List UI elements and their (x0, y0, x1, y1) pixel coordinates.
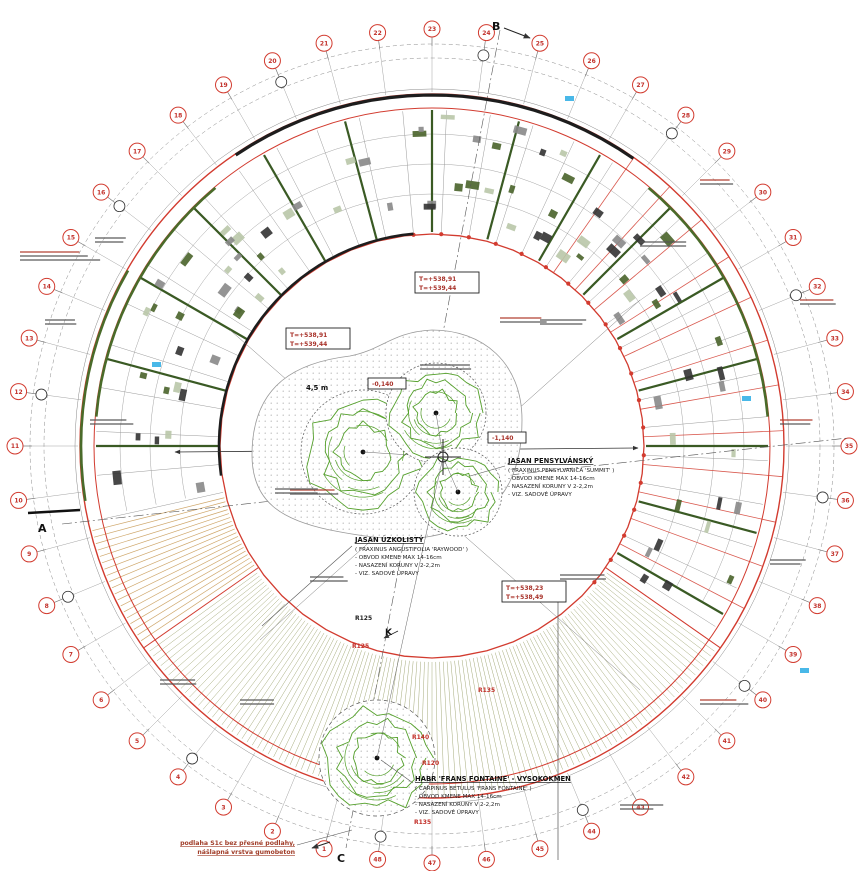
svg-text:6: 6 (99, 697, 103, 704)
elevation-value: T=+538,49 (506, 594, 543, 601)
tree-label-spec: - VIZ. SADOVÉ ÚPRAVY (508, 490, 572, 498)
svg-text:47: 47 (428, 860, 436, 867)
svg-text:25: 25 (536, 40, 544, 47)
elevation-box-4: -1,140 (488, 432, 526, 443)
elevation-box-2: T=+538,91 T=+539,44 (415, 272, 479, 293)
svg-text:40: 40 (759, 697, 767, 704)
svg-text:24: 24 (482, 30, 490, 37)
tree-label-spec: - VIZ. SADOVÉ ÚPRAVY (355, 569, 419, 577)
svg-text:27: 27 (636, 82, 644, 89)
svg-text:36: 36 (841, 498, 849, 505)
section-letter: B (492, 20, 500, 33)
tree-label-spec: - NASAZENÍ KORUNY V 2-2,2m (415, 801, 500, 808)
radius-label: R120 (422, 760, 439, 767)
elevation-value: T=+539,44 (419, 285, 456, 292)
svg-text:42: 42 (682, 774, 690, 781)
svg-text:10: 10 (14, 498, 22, 505)
elevation-value: T=+538,91 (290, 332, 327, 339)
svg-text:32: 32 (813, 284, 821, 291)
svg-text:26: 26 (587, 58, 595, 65)
svg-text:16: 16 (97, 189, 105, 196)
svg-text:19: 19 (219, 82, 227, 89)
radius-label: R125 (352, 643, 369, 650)
tree-label-title: JASAN PENSYLVÁNSKÝ (507, 456, 593, 465)
svg-text:46: 46 (482, 857, 490, 864)
section-marker-a: A (28, 510, 80, 535)
svg-text:14: 14 (43, 284, 51, 291)
svg-text:1: 1 (322, 846, 326, 853)
svg-text:37: 37 (831, 551, 839, 558)
svg-text:33: 33 (831, 335, 839, 342)
section-letter: A (38, 522, 47, 535)
elevation-value: -1,140 (492, 435, 513, 442)
floor-note-line: nášlapná vrstva gumobeton (197, 848, 295, 856)
tree-label-spec: - OBVOD KMENE MAX 14-16cm (508, 476, 595, 482)
tree-label-latin: ( FRAXINUS ANGUSTIFOLIA 'RAYWOOD' ) (355, 547, 468, 553)
svg-text:8: 8 (45, 603, 49, 610)
floor-plan-drawing: 1234567891011121314151617181920212223242… (0, 0, 862, 871)
tree-label-spec: - NASAZENÍ KORUNY V 2-2,2m (355, 562, 440, 569)
floor-plan-canvas: 1234567891011121314151617181920212223242… (0, 0, 862, 871)
tree-label-latin: ( CARPINUS BETULUS 'FRANS FONTAINE' ) (415, 786, 532, 792)
svg-text:35: 35 (845, 443, 853, 450)
section-marker-b: B (492, 20, 530, 38)
radius-label: R135 (478, 687, 495, 694)
tree-label-title: JASAN ÚZKOLISTÝ (354, 535, 424, 544)
floor-note-line: podlaha S1c bez přesné podlahy, (180, 839, 295, 847)
elevation-value: T=+538,23 (506, 585, 543, 592)
svg-text:13: 13 (25, 335, 33, 342)
svg-text:48: 48 (373, 857, 381, 864)
tree-label-spec: - VIZ. SADOVÉ ÚPRAVY (415, 808, 479, 816)
svg-text:7: 7 (69, 652, 73, 659)
svg-text:44: 44 (587, 828, 595, 835)
svg-text:5: 5 (135, 738, 139, 745)
svg-text:2: 2 (270, 828, 274, 835)
tree-label-spec: - OBVOD KMENE MAX 14-16cm (355, 555, 442, 561)
svg-text:22: 22 (373, 30, 381, 37)
svg-text:28: 28 (682, 112, 690, 119)
tree-label-spec: - NASAZENÍ KORUNY V 2-2,2m (508, 483, 593, 490)
generated-plan-geometry: 1234567891011121314151617181920212223242… (7, 21, 857, 871)
svg-text:4: 4 (176, 774, 180, 781)
svg-text:12: 12 (14, 389, 22, 396)
svg-text:31: 31 (789, 235, 797, 242)
svg-text:23: 23 (428, 26, 436, 33)
radius-label: R125 (355, 615, 372, 622)
svg-text:29: 29 (723, 148, 731, 155)
svg-text:20: 20 (268, 58, 276, 65)
svg-text:38: 38 (813, 603, 821, 610)
height-label: 4,5 m (306, 384, 328, 392)
svg-text:18: 18 (174, 112, 182, 119)
svg-text:15: 15 (67, 235, 75, 242)
svg-text:34: 34 (841, 389, 849, 396)
tree-label-spec: - OBVOD KMENE MAX 14-16cm (415, 794, 502, 800)
svg-text:11: 11 (11, 443, 19, 450)
svg-text:41: 41 (723, 738, 731, 745)
svg-text:21: 21 (320, 40, 328, 47)
section-letter: C (337, 852, 345, 865)
radius-label: R140 (412, 734, 429, 741)
elevation-value: -0,140 (372, 381, 393, 388)
svg-text:45: 45 (536, 846, 544, 853)
svg-text:3: 3 (221, 804, 225, 811)
tree-label-title: HABR 'FRANS FONTAINE' - VYSOKOKMEN (415, 775, 571, 783)
svg-text:30: 30 (759, 189, 767, 196)
radius-label: R135 (414, 819, 431, 826)
elevation-box-1: T=+538,91 T=+539,44 (286, 328, 350, 349)
elevation-value: T=+539,44 (290, 341, 327, 348)
svg-text:17: 17 (133, 148, 141, 155)
elevation-box-5: -0,140 (368, 378, 406, 389)
svg-text:39: 39 (789, 652, 797, 659)
elevation-value: T=+538,91 (419, 276, 456, 283)
svg-text:9: 9 (27, 551, 31, 558)
elevation-box-3: T=+538,23 T=+538,49 (502, 581, 566, 602)
tree-label-latin: ( FRAXINUS PENSYLVANICA 'SUMMIT' ) (508, 468, 614, 474)
